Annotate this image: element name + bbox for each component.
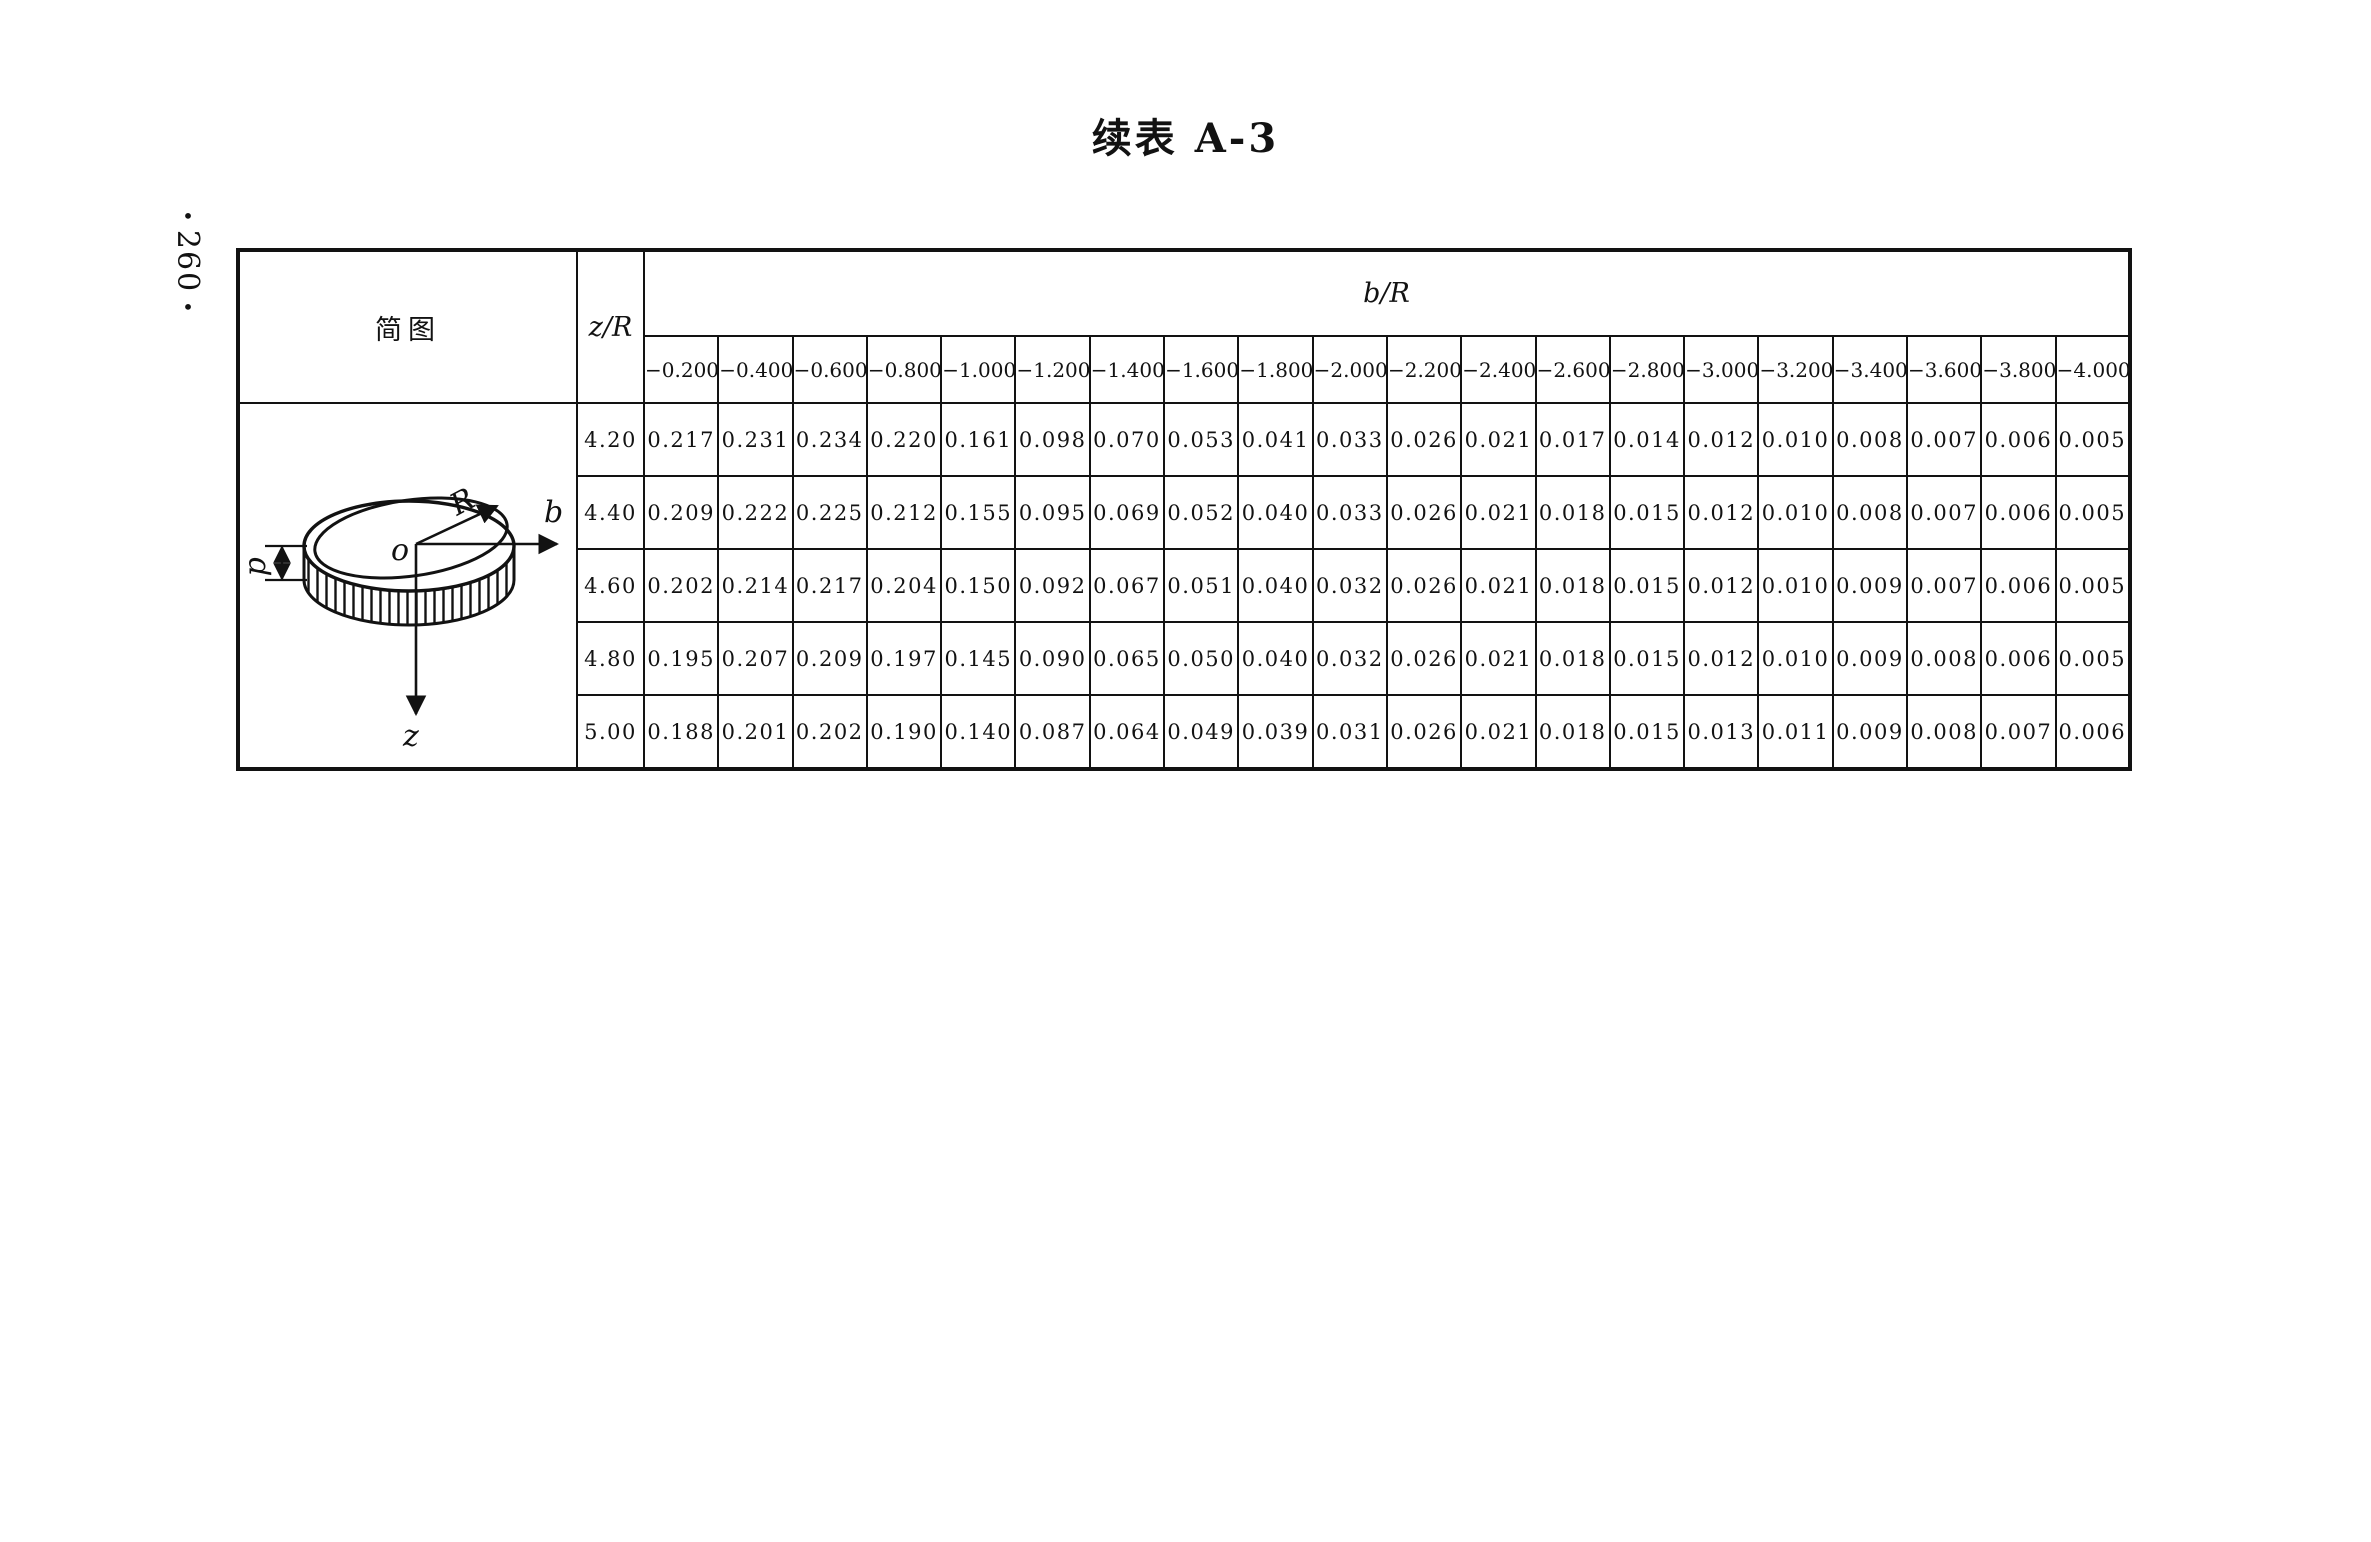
table-cell: 0.021: [1461, 549, 1535, 622]
col-header: −3.800: [1981, 336, 2055, 403]
table-cell: 0.040: [1238, 476, 1312, 549]
table-cell: 0.217: [793, 549, 867, 622]
table-cell: 0.009: [1833, 695, 1907, 769]
diagram-column-header: 简图: [238, 250, 577, 403]
table-cell: 0.150: [941, 549, 1015, 622]
table-cell: 0.092: [1015, 549, 1089, 622]
table-cell: 0.009: [1833, 549, 1907, 622]
page-number: • 260 •: [160, 206, 216, 317]
table-cell: 0.007: [1981, 695, 2055, 769]
table-cell: 0.026: [1387, 476, 1461, 549]
col-header: −0.800: [867, 336, 941, 403]
table-cell: 0.202: [793, 695, 867, 769]
table-cell: 0.007: [1907, 549, 1981, 622]
table-cell: 0.014: [1610, 403, 1684, 476]
table-cell: 0.026: [1387, 622, 1461, 695]
table-cell: 0.007: [1907, 403, 1981, 476]
col-header: −4.000: [2056, 336, 2130, 403]
table-cell: 0.018: [1536, 622, 1610, 695]
origin-label: o: [391, 533, 411, 568]
table-cell: 0.032: [1313, 549, 1387, 622]
zr-value-cell: 5.00: [577, 695, 644, 769]
load-coefficient-table: 简图 z/R b/R −0.200−0.400−0.600−0.800−1.00…: [236, 248, 2132, 771]
table-cell: 0.006: [1981, 403, 2055, 476]
table-cell: 0.013: [1684, 695, 1758, 769]
table-cell: 0.188: [644, 695, 718, 769]
col-header: −1.400: [1090, 336, 1164, 403]
table-cell: 0.021: [1461, 476, 1535, 549]
table-cell: 0.010: [1758, 476, 1832, 549]
table-cell: 0.098: [1015, 403, 1089, 476]
table-cell: 0.026: [1387, 403, 1461, 476]
table-cell: 0.155: [941, 476, 1015, 549]
table-cell: 0.202: [644, 549, 718, 622]
table-row: p R o b z 4.200.2170.2310.2340.2200.1610…: [238, 403, 2130, 476]
table-cell: 0.145: [941, 622, 1015, 695]
table-cell: 0.012: [1684, 476, 1758, 549]
col-header: −3.200: [1758, 336, 1832, 403]
table-cell: 0.015: [1610, 622, 1684, 695]
table-cell: 0.095: [1015, 476, 1089, 549]
table-cell: 0.049: [1164, 695, 1238, 769]
col-header: −2.400: [1461, 336, 1535, 403]
table-cell: 0.031: [1313, 695, 1387, 769]
table-cell: 0.051: [1164, 549, 1238, 622]
table-cell: 0.222: [718, 476, 792, 549]
table-cell: 0.050: [1164, 622, 1238, 695]
col-header: −0.600: [793, 336, 867, 403]
table-cell: 0.195: [644, 622, 718, 695]
table-cell: 0.214: [718, 549, 792, 622]
table-cell: 0.021: [1461, 403, 1535, 476]
table-cell: 0.067: [1090, 549, 1164, 622]
table-cell: 0.040: [1238, 549, 1312, 622]
table-cell: 0.207: [718, 622, 792, 695]
table-cell: 0.069: [1090, 476, 1164, 549]
b-axis-label: b: [544, 495, 565, 530]
table-cell: 0.231: [718, 403, 792, 476]
col-header: −0.200: [644, 336, 718, 403]
zr-value-cell: 4.20: [577, 403, 644, 476]
col-header: −1.600: [1164, 336, 1238, 403]
table-cell: 0.217: [644, 403, 718, 476]
table-cell: 0.015: [1610, 695, 1684, 769]
table-cell: 0.005: [2056, 549, 2130, 622]
table-cell: 0.008: [1833, 403, 1907, 476]
table-cell: 0.015: [1610, 549, 1684, 622]
circular-load-diagram: p R o b z: [241, 416, 576, 756]
zr-column-header: z/R: [577, 250, 644, 403]
z-axis-label: z: [402, 719, 420, 754]
table-cell: 0.018: [1536, 549, 1610, 622]
table-cell: 0.052: [1164, 476, 1238, 549]
page-number-dot: •: [182, 297, 194, 317]
col-header: −2.800: [1610, 336, 1684, 403]
table-cell: 0.209: [644, 476, 718, 549]
table-cell: 0.005: [2056, 403, 2130, 476]
table-cell: 0.021: [1461, 622, 1535, 695]
table-cell: 0.006: [1981, 549, 2055, 622]
table-cell: 0.087: [1015, 695, 1089, 769]
table-cell: 0.009: [1833, 622, 1907, 695]
table-cell: 0.006: [2056, 695, 2130, 769]
table-cell: 0.032: [1313, 622, 1387, 695]
table-cell: 0.018: [1536, 476, 1610, 549]
br-group-header: b/R: [644, 250, 2130, 336]
col-header: −1.000: [941, 336, 1015, 403]
table-cell: 0.026: [1387, 695, 1461, 769]
col-header: −2.000: [1313, 336, 1387, 403]
col-header: −0.400: [718, 336, 792, 403]
page-number-value: 260: [171, 230, 206, 293]
table-cell: 0.033: [1313, 476, 1387, 549]
table-cell: 0.040: [1238, 622, 1312, 695]
table-cell: 0.039: [1238, 695, 1312, 769]
table-cell: 0.033: [1313, 403, 1387, 476]
table-cell: 0.053: [1164, 403, 1238, 476]
table-cell: 0.007: [1907, 476, 1981, 549]
table-body: p R o b z 4.200.2170.2310.2340.2200.1610…: [238, 403, 2130, 769]
header-row-top: 简图 z/R b/R: [238, 250, 2130, 336]
page-title: 续表 A-3: [0, 106, 2371, 164]
table-cell: 0.201: [718, 695, 792, 769]
table-cell: 0.008: [1907, 695, 1981, 769]
table-cell: 0.008: [1833, 476, 1907, 549]
table-cell: 0.008: [1907, 622, 1981, 695]
table-cell: 0.220: [867, 403, 941, 476]
table-header: 简图 z/R b/R −0.200−0.400−0.600−0.800−1.00…: [238, 250, 2130, 403]
table-cell: 0.090: [1015, 622, 1089, 695]
table-cell: 0.010: [1758, 622, 1832, 695]
table-cell: 0.064: [1090, 695, 1164, 769]
col-header: −3.000: [1684, 336, 1758, 403]
col-header: −2.600: [1536, 336, 1610, 403]
table-cell: 0.065: [1090, 622, 1164, 695]
table-cell: 0.204: [867, 549, 941, 622]
table-cell: 0.010: [1758, 403, 1832, 476]
p-label: p: [241, 555, 273, 576]
table-cell: 0.041: [1238, 403, 1312, 476]
table-cell: 0.012: [1684, 622, 1758, 695]
table-cell: 0.018: [1536, 695, 1610, 769]
table-cell: 0.140: [941, 695, 1015, 769]
table-cell: 0.005: [2056, 622, 2130, 695]
table-cell: 0.006: [1981, 622, 2055, 695]
table-cell: 0.026: [1387, 549, 1461, 622]
table-cell: 0.011: [1758, 695, 1832, 769]
col-header: −3.600: [1907, 336, 1981, 403]
table-cell: 0.070: [1090, 403, 1164, 476]
table-cell: 0.225: [793, 476, 867, 549]
table-cell: 0.190: [867, 695, 941, 769]
table-cell: 0.017: [1536, 403, 1610, 476]
table-cell: 0.234: [793, 403, 867, 476]
table-cell: 0.005: [2056, 476, 2130, 549]
table-cell: 0.006: [1981, 476, 2055, 549]
diagram-cell: p R o b z: [238, 403, 577, 769]
table-cell: 0.161: [941, 403, 1015, 476]
col-header: −1.800: [1238, 336, 1312, 403]
col-header: −3.400: [1833, 336, 1907, 403]
table-cell: 0.012: [1684, 403, 1758, 476]
col-header: −1.200: [1015, 336, 1089, 403]
zr-value-cell: 4.60: [577, 549, 644, 622]
zr-value-cell: 4.80: [577, 622, 644, 695]
table-cell: 0.012: [1684, 549, 1758, 622]
zr-value-cell: 4.40: [577, 476, 644, 549]
page-number-dot: •: [182, 206, 194, 226]
table-cell: 0.212: [867, 476, 941, 549]
table-cell: 0.015: [1610, 476, 1684, 549]
table-cell: 0.209: [793, 622, 867, 695]
table-cell: 0.010: [1758, 549, 1832, 622]
table-cell: 0.021: [1461, 695, 1535, 769]
table-cell: 0.197: [867, 622, 941, 695]
col-header: −2.200: [1387, 336, 1461, 403]
